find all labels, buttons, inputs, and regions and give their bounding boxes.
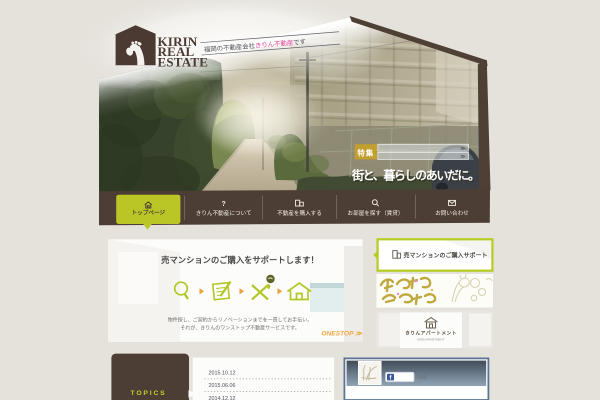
svg-text:TOPICS: TOPICS (131, 390, 167, 397)
svg-text:特集: 特集 (357, 148, 374, 157)
svg-text:きりんアパートメント: きりんアパートメント (405, 330, 457, 337)
svg-text:2015.10.12: 2015.10.12 (209, 370, 236, 376)
svg-text:お問い合わせ: お問い合わせ (435, 209, 469, 217)
svg-text:158: 158 (417, 375, 426, 381)
svg-text:物件探し、ご契約からリノベーションまでを一貫してお手伝い。: 物件探し、ご契約からリノベーションまでを一貫してお手伝い。 (168, 317, 313, 324)
svg-text:2015.06.06: 2015.06.06 (209, 383, 236, 389)
svg-text:?: ? (222, 201, 226, 208)
svg-text:お部屋を探す（賃貸）: お部屋を探す（賃貸） (348, 209, 404, 217)
svg-text:≫: ≫ (460, 146, 465, 152)
svg-text:それが、きりんのワンストップ不動産サービスです。: それが、きりんのワンストップ不動産サービスです。 (180, 325, 299, 332)
svg-text:トップページ: トップページ (132, 209, 166, 217)
svg-text:KIRIN APARTMENT: KIRIN APARTMENT (418, 338, 445, 342)
svg-text:ONESTOP ≫: ONESTOP ≫ (321, 331, 363, 338)
svg-text:≫: ≫ (460, 154, 465, 160)
svg-text:ESTATE: ESTATE (158, 54, 209, 69)
svg-text:2014.12.12: 2014.12.12 (209, 396, 236, 400)
svg-text:不動産を購入する: 不動産を購入する (277, 209, 322, 217)
svg-text:街と、暮らしのあいだに。: 街と、暮らしのあいだに。 (351, 168, 479, 183)
svg-text:売マンションのご購入をサポートします！: 売マンションのご購入をサポートします！ (161, 255, 319, 265)
svg-text:きりん不動産について: きりん不動産について (196, 209, 252, 217)
svg-text:売マンションのご購入サポート: 売マンションのご購入サポート (403, 252, 488, 260)
